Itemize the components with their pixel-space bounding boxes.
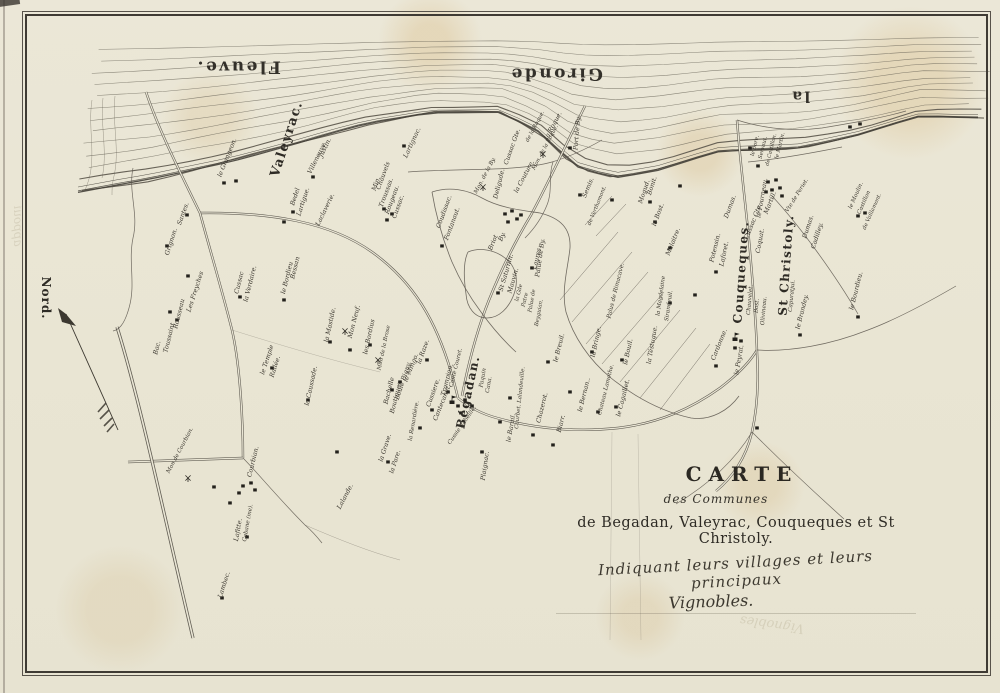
village-marker [858,122,862,125]
village-marker [291,210,295,213]
village-marker [778,186,782,189]
village-marker [503,212,507,215]
village-marker [848,125,852,128]
village-marker [510,209,514,212]
map-subtitle: des Communes [516,492,916,506]
village-marker [531,433,535,436]
village-marker [418,426,422,429]
village-marker [496,291,500,294]
village-marker [241,484,245,487]
village-marker [648,200,652,203]
village-marker [856,214,860,217]
map-scan: le Grangeon.BedelLartigue.Villeneuve.Jus… [0,0,1000,693]
village-marker [733,346,737,349]
village-marker [546,360,550,363]
north-arrow-head [58,308,76,326]
map-title: CARTE [568,462,916,486]
north-label: Nord. [40,277,52,320]
village-marker [335,450,339,453]
path-line [560,232,618,300]
bleedthrough-text: appoui [12,205,24,246]
village-marker [780,194,784,197]
village-marker [386,460,390,463]
road-center [117,327,193,638]
path-line [737,111,906,130]
village-marker [168,310,172,313]
village-marker [693,293,697,296]
village-marker [498,420,502,423]
road-center [462,106,585,396]
village-marker [222,181,226,184]
village-marker [508,396,512,399]
village-marker [253,488,257,491]
village-marker [798,333,802,336]
village-marker [311,175,315,178]
village-marker [430,408,434,411]
river-bank-line [78,112,978,191]
village-marker [282,220,286,223]
village-marker [440,244,444,247]
page-edge-shadow [3,0,5,693]
windmill-icon [185,475,190,482]
north-arrow-feather [98,403,106,412]
village-marker [238,295,242,298]
north-arrow-shaft [66,314,118,430]
marsh-streak [102,98,104,178]
river-name-label: Gironde [509,65,603,82]
village-marker [348,348,352,351]
road [462,106,585,396]
map-communes-line: de Begadan, Valeyrac, Couqueques et St C… [556,515,916,547]
road [200,213,243,458]
village-marker [186,274,190,277]
path-line [113,168,135,331]
village-marker [714,270,718,273]
path-line [596,204,626,236]
church-icon [450,401,455,405]
village-marker [506,220,510,223]
path-line [232,330,380,372]
church-icon [733,338,738,342]
village-marker [515,217,519,220]
village-marker [678,184,682,187]
village-marker [519,213,523,216]
village-marker [385,218,389,221]
church-flag-icon [735,333,739,338]
village-marker [714,364,718,367]
village-marker [568,390,572,393]
river-name-label: la [790,89,810,104]
village-marker [756,164,760,167]
village-marker [282,298,286,301]
village-marker [755,426,759,429]
church-flag-icon [452,396,456,401]
village-marker [551,443,555,446]
village-marker [212,485,216,488]
village-marker [774,178,778,181]
river-name-label: Fleuve. [195,58,281,75]
village-marker [610,198,614,201]
village-marker [739,339,743,342]
road-center [200,213,243,458]
village-marker [237,491,241,494]
village-marker [228,501,232,504]
north-arrow-feather [104,418,112,426]
village-marker [249,481,253,484]
village-marker [234,179,238,182]
north-arrow-feather [107,424,114,432]
village-marker [425,358,429,361]
village-marker [856,315,860,318]
river-wave-line [99,38,979,50]
path-line [305,525,400,560]
village-marker [568,146,572,149]
north-arrow-feather [100,410,109,419]
map-title-block: CARTE des Communes de Begadan, Valeyrac,… [556,462,916,614]
road-center [128,458,243,462]
